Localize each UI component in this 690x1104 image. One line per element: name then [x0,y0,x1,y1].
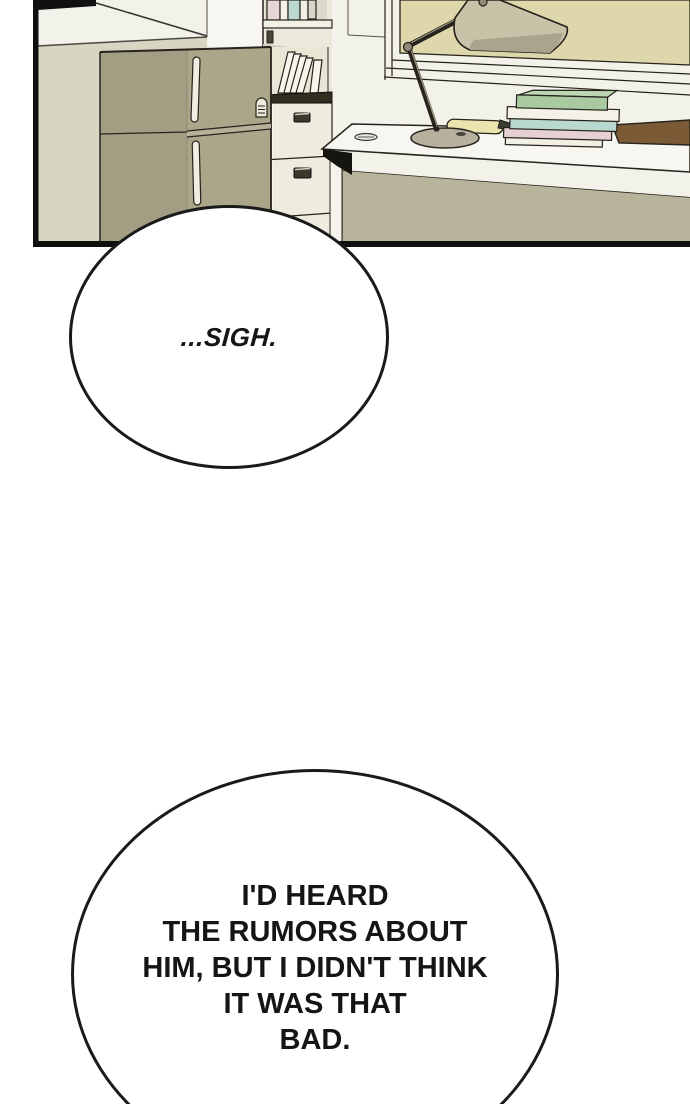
rumors-text: I'D HEARD THE RUMORS ABOUT HIM, BUT I DI… [142,878,487,1058]
rumors-line: I'D HEARD [142,878,487,914]
fridge-dispenser-plate [256,98,267,117]
shelf-books-top [267,0,316,21]
rumors-line: HIM, BUT I DIDN'T THINK [142,950,487,986]
wooden-plank [612,120,690,145]
sigh-text: ...SIGH. [180,322,279,353]
speech-bubble-rumors: I'D HEARD THE RUMORS ABOUT HIM, BUT I DI… [71,769,559,1104]
drawer-handle [294,168,311,178]
room-panel [0,0,690,247]
rumors-line: THE RUMORS ABOUT [142,914,487,950]
book-stack [503,88,619,148]
rumors-line: BAD. [142,1022,487,1058]
drawer-handle [294,113,310,122]
rumors-line: IT WAS THAT [142,986,487,1022]
speech-bubble-sigh: ...SIGH. [69,205,389,469]
comic-page: ...SIGH. I'D HEARD THE RUMORS ABOUT HIM,… [0,0,690,1104]
